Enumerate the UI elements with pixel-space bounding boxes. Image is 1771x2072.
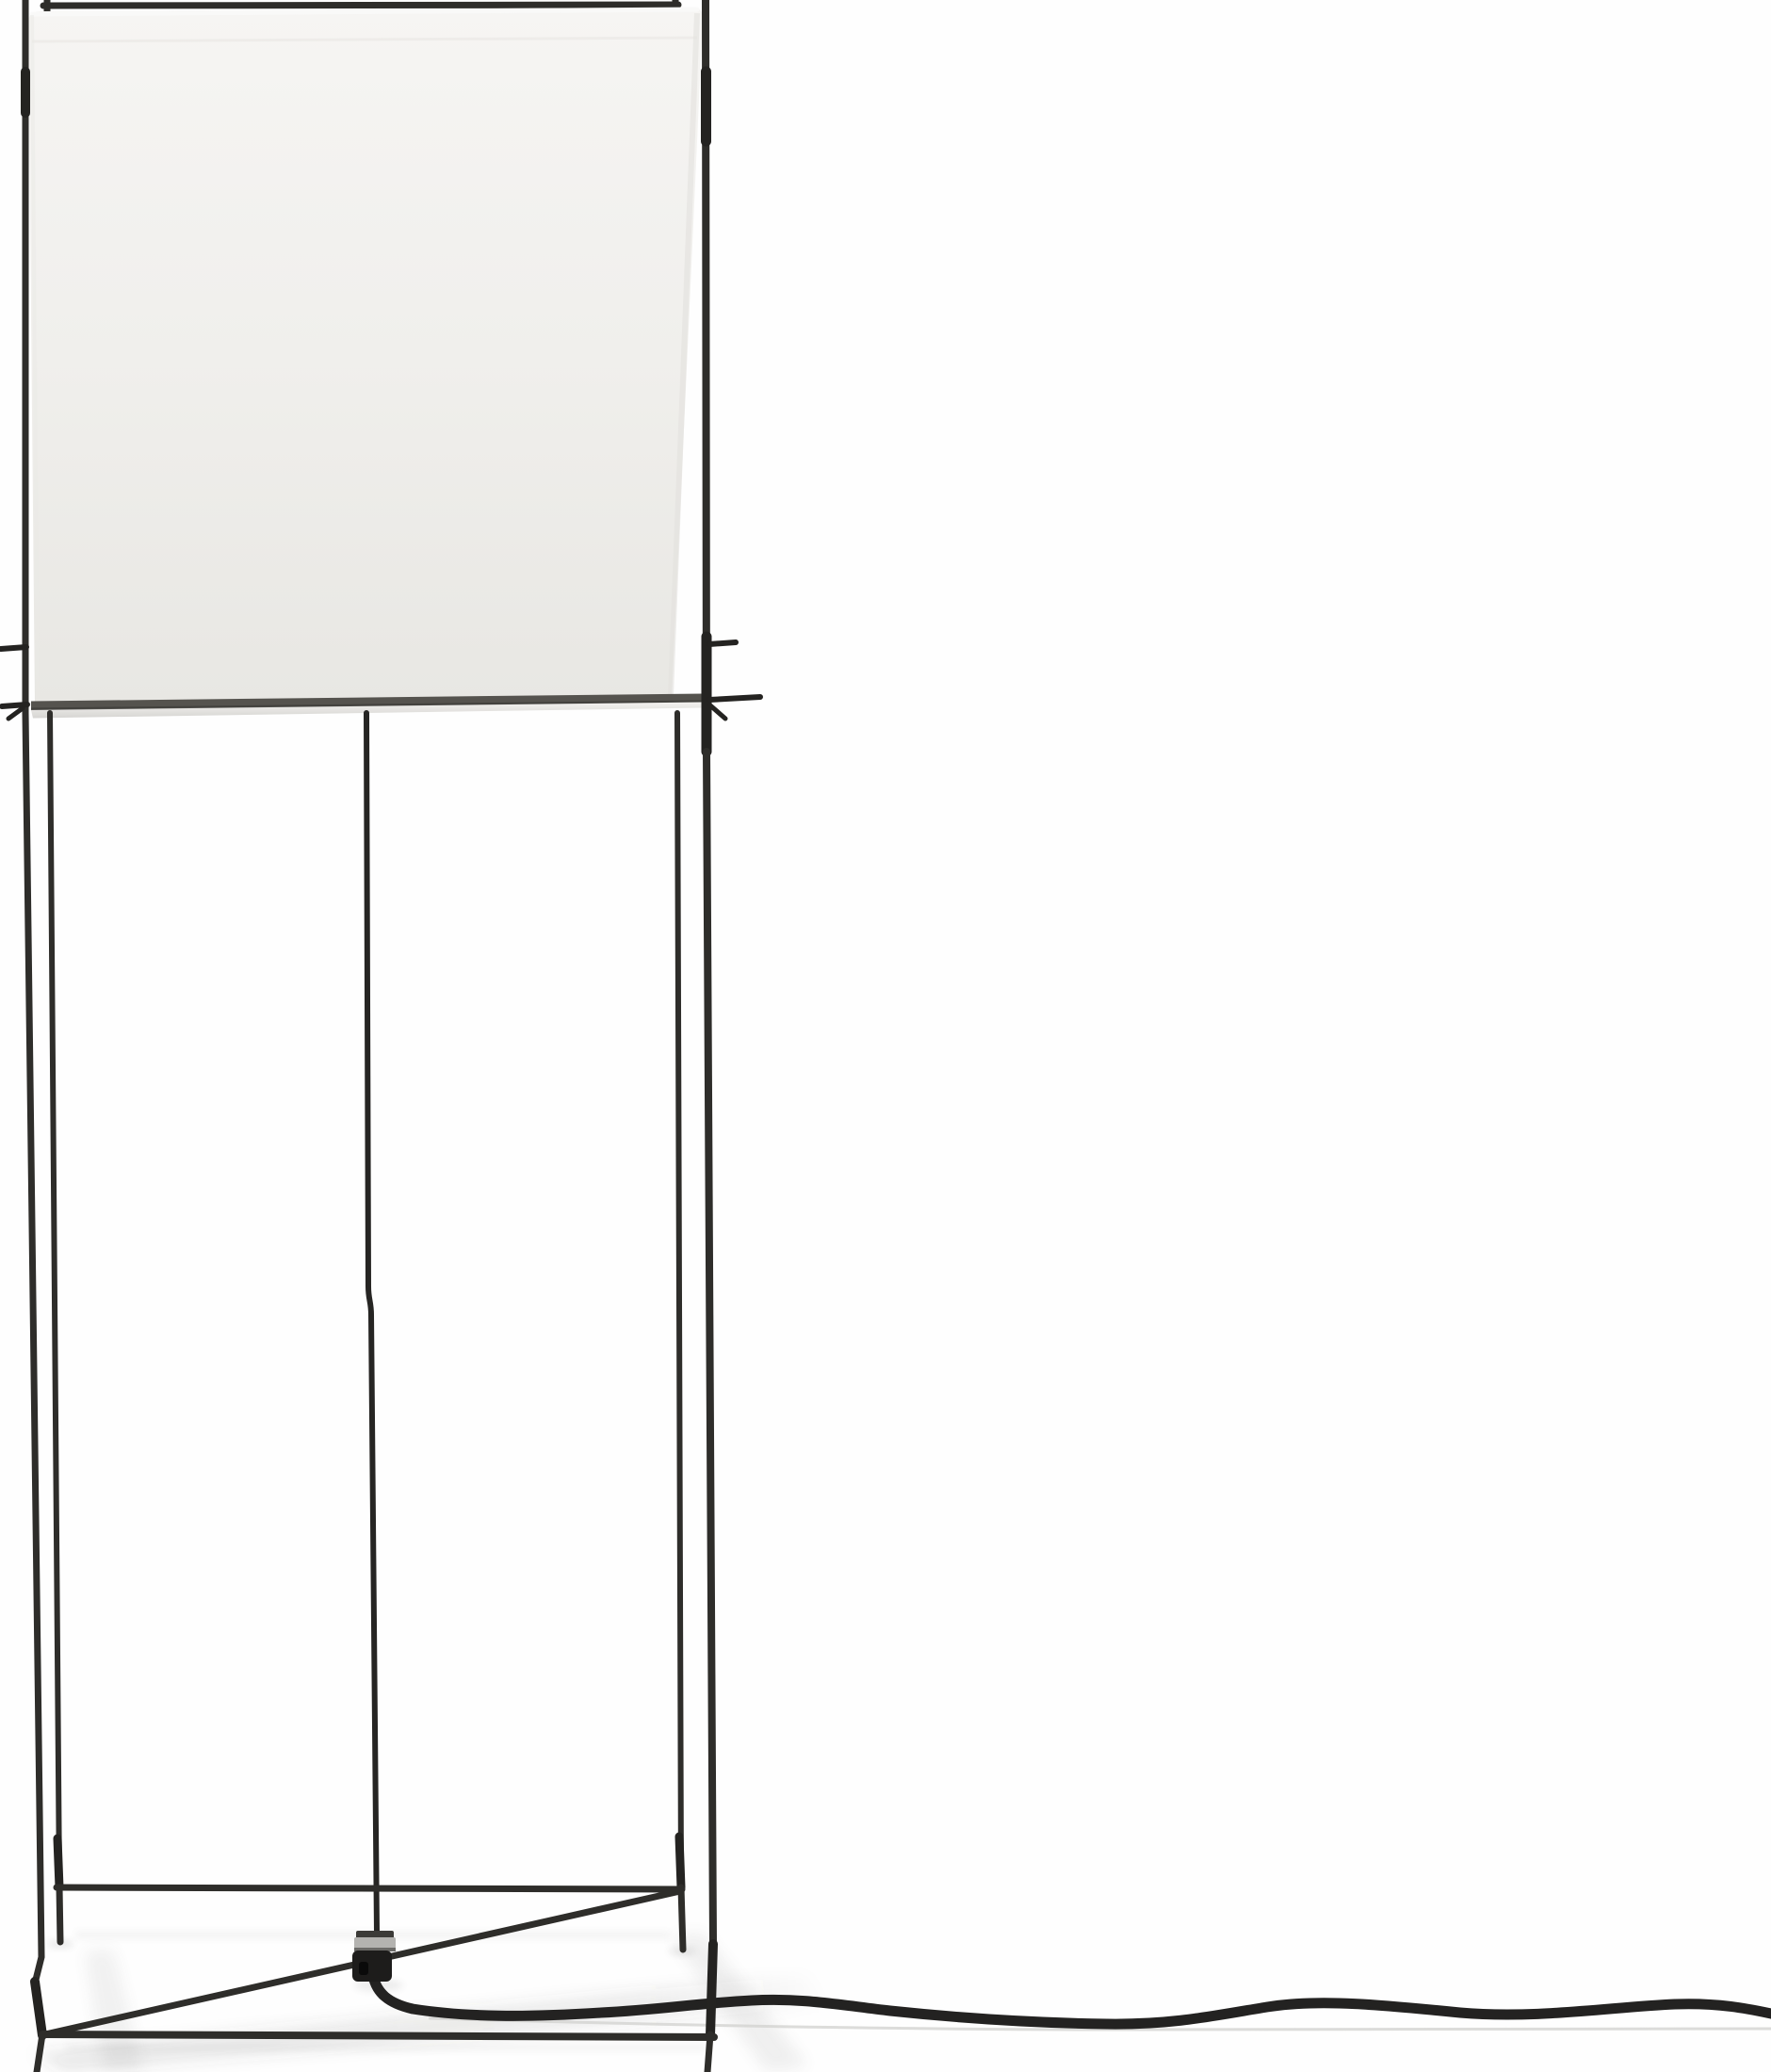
right-lower-tick	[709, 697, 760, 700]
top-hanger-bar	[43, 5, 678, 6]
right-upper-tick	[709, 642, 736, 644]
back-right-leg	[677, 713, 681, 1887]
shade-fabric	[28, 8, 703, 704]
front-right-sleeve	[710, 1944, 713, 2035]
floor-lamp-product-photo	[0, 0, 1771, 2072]
back-right-sleeve	[679, 1837, 681, 1887]
base-front-bar	[42, 2034, 714, 2037]
lamp-illustration	[0, 0, 1771, 2072]
back-right-foot	[681, 1887, 683, 1950]
cord-connector	[352, 1931, 396, 1982]
left-upper-tick	[1, 647, 26, 649]
lamp-shade	[28, 8, 704, 719]
front-bar-floor-shadow	[66, 2044, 707, 2051]
photo-stage	[0, 0, 1771, 2072]
back-left-sleeve	[57, 1838, 59, 1887]
connector-box-hole	[359, 1962, 368, 1975]
connector-box	[352, 1951, 392, 1982]
back-left-foot	[59, 1887, 60, 1942]
base-back-bar	[57, 1887, 682, 1889]
